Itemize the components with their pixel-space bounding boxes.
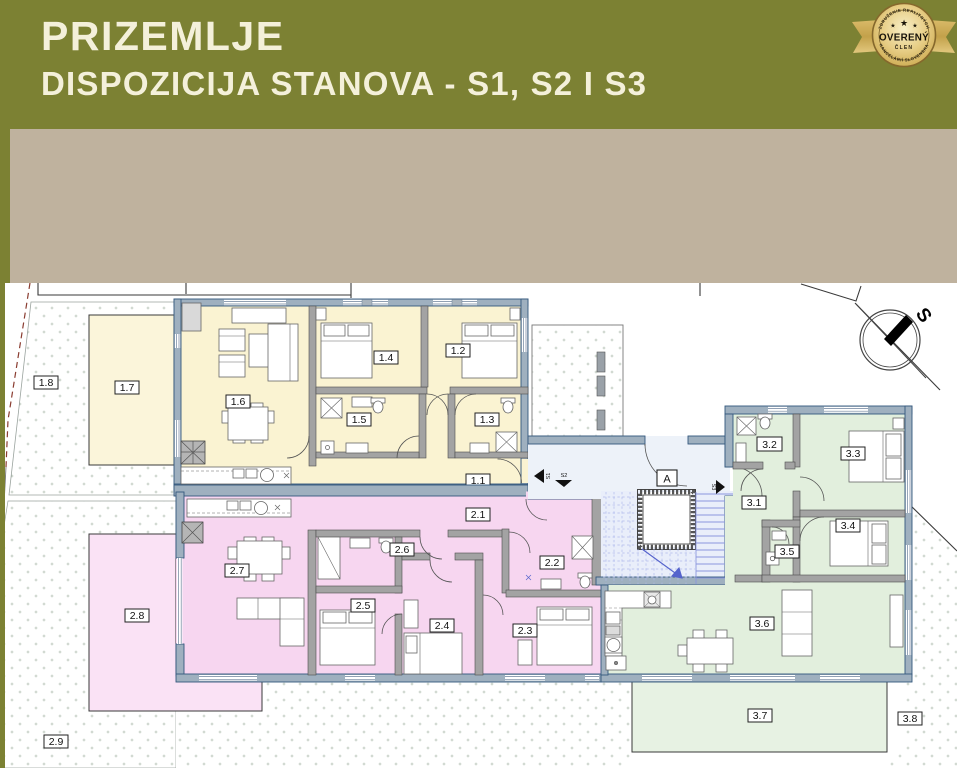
svg-text:3.6: 3.6 [755,618,770,630]
svg-text:S1: S1 [546,473,552,480]
svg-text:★: ★ [912,23,917,30]
svg-text:2.4: 2.4 [435,620,450,632]
svg-text:2.1: 2.1 [471,509,486,521]
svg-text:S3: S3 [710,484,716,491]
svg-text:3.1: 3.1 [747,497,762,509]
svg-text:2.8: 2.8 [130,610,145,622]
svg-text:OVERENÝ: OVERENÝ [879,32,929,44]
svg-text:1.3: 1.3 [480,414,495,426]
svg-text:3.7: 3.7 [753,710,768,722]
svg-text:2.9: 2.9 [49,736,64,748]
svg-text:2.3: 2.3 [518,625,533,637]
svg-text:2.2: 2.2 [545,557,560,569]
svg-text:A: A [663,474,671,486]
svg-text:1.7: 1.7 [120,382,135,394]
svg-text:★: ★ [890,23,895,30]
svg-text:1.2: 1.2 [451,345,466,357]
svg-text:1.6: 1.6 [231,396,246,408]
svg-text:3.2: 3.2 [762,439,777,451]
svg-text:3.8: 3.8 [903,713,918,725]
svg-text:★: ★ [900,18,908,28]
svg-text:1.8: 1.8 [39,377,54,389]
svg-text:2.5: 2.5 [356,600,371,612]
svg-text:3.4: 3.4 [841,520,856,532]
svg-text:1.5: 1.5 [352,414,367,426]
svg-text:2.6: 2.6 [395,544,410,556]
svg-text:S2: S2 [561,473,568,479]
svg-text:ČLEN: ČLEN [895,44,913,51]
svg-text:3.5: 3.5 [780,546,795,558]
svg-text:2.7: 2.7 [230,565,245,577]
svg-text:3.3: 3.3 [846,448,861,460]
svg-text:1.4: 1.4 [379,352,394,364]
